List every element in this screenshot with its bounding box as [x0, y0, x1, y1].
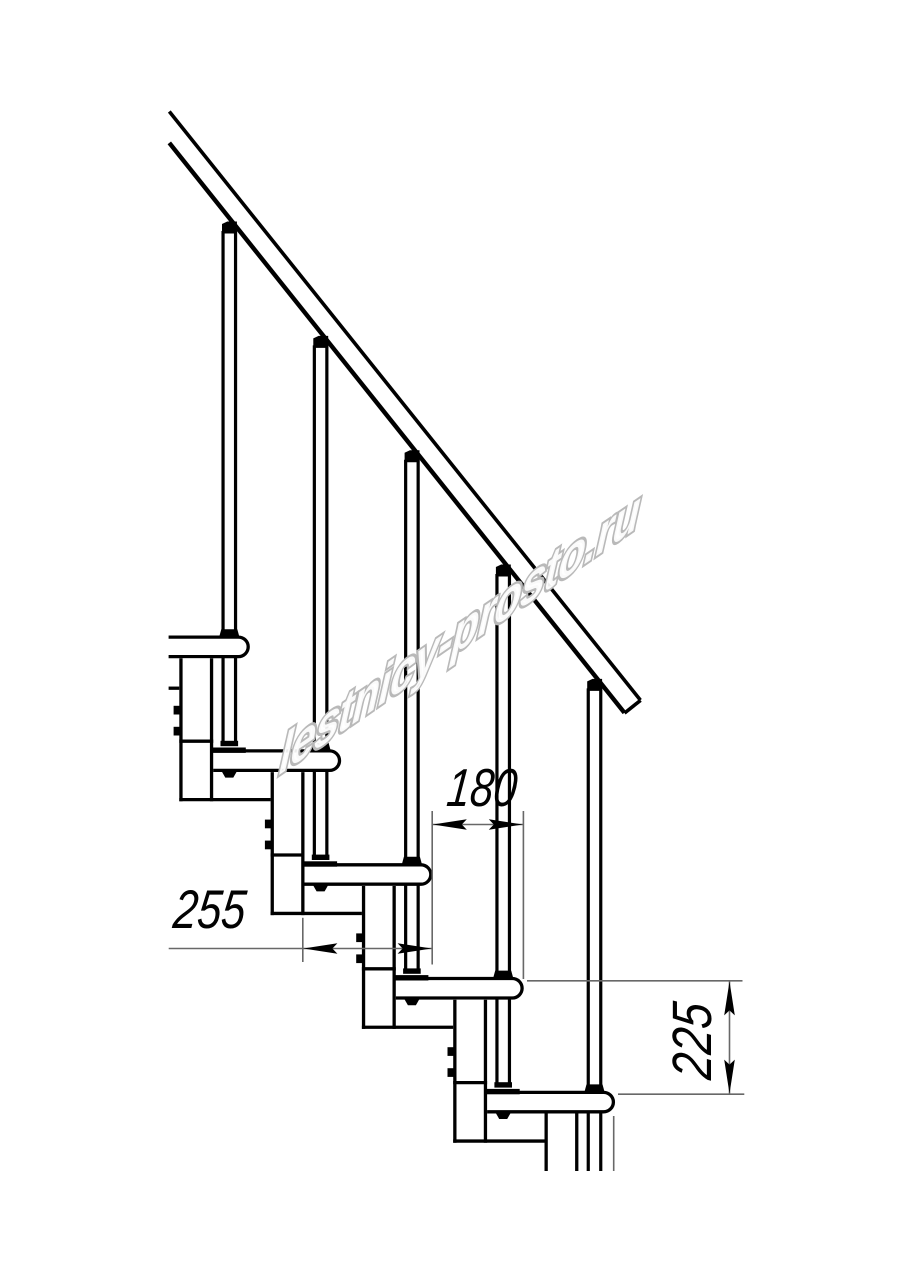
svg-text:180: 180: [444, 758, 520, 818]
svg-text:255: 255: [170, 879, 250, 940]
svg-text:225: 225: [661, 999, 723, 1083]
